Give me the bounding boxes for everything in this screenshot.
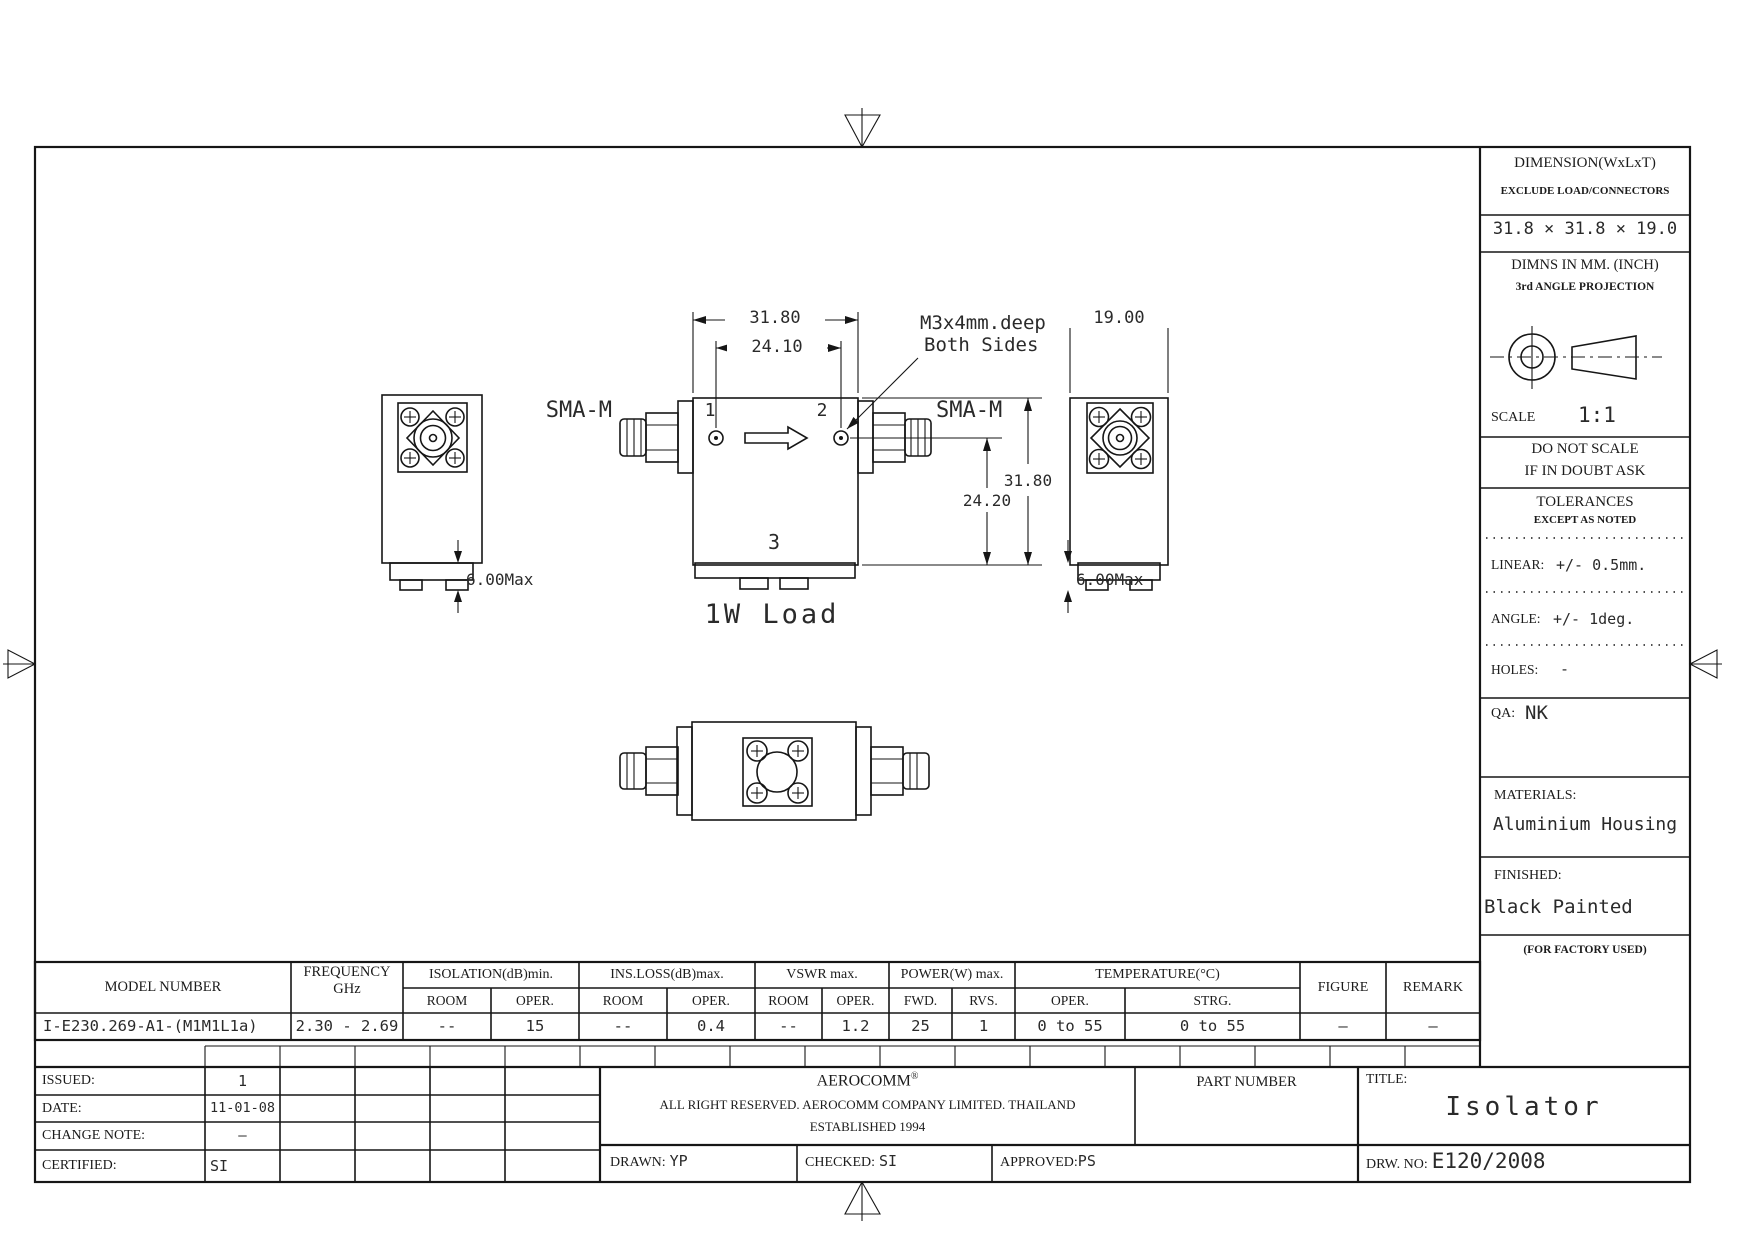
tolerances-subtitle: EXCEPT AS NOTED bbox=[1480, 514, 1690, 526]
cell-temp-oper: 0 to 55 bbox=[1015, 1013, 1125, 1040]
change-note-label: CHANGE NOTE: bbox=[42, 1122, 145, 1150]
col-model: MODEL NUMBER bbox=[35, 962, 291, 1013]
load-label: 1W Load bbox=[672, 599, 872, 630]
holes-label: HOLES: bbox=[1491, 662, 1538, 678]
company-name: AEROCOMM bbox=[817, 1072, 911, 1089]
linear-label: LINEAR: bbox=[1491, 557, 1544, 573]
drw-no-label: DRW. NO: bbox=[1366, 1157, 1428, 1172]
col-ins-loss: INS.LOSS(dB)max. bbox=[579, 962, 755, 988]
sub-vswr-room: ROOM bbox=[755, 988, 822, 1013]
tolerances-title: TOLERANCES bbox=[1480, 494, 1690, 511]
scale-value: 1:1 bbox=[1578, 403, 1616, 427]
bottom-view bbox=[620, 722, 929, 820]
cell-isolation-oper: 15 bbox=[491, 1013, 579, 1040]
qa-label: QA: bbox=[1491, 706, 1515, 722]
sub-temp-oper: OPER. bbox=[1015, 988, 1125, 1013]
sub-iso-room: ROOM bbox=[403, 988, 491, 1013]
date-label: DATE: bbox=[42, 1095, 82, 1122]
col-isolation: ISOLATION(dB)min. bbox=[403, 962, 579, 988]
checked-label: CHECKED: bbox=[805, 1155, 875, 1170]
dim-width-label: 31.80 bbox=[725, 308, 825, 328]
warning-line1: DO NOT SCALE bbox=[1480, 441, 1690, 458]
sub-temp-strg: STRG. bbox=[1125, 988, 1300, 1013]
issued-value: 1 bbox=[205, 1067, 280, 1095]
screw-icon bbox=[1090, 408, 1151, 469]
col-frequency-line1: FREQUENCY bbox=[291, 964, 403, 981]
sub-iso-oper: OPER. bbox=[491, 988, 579, 1013]
cell-model: I-E230.269-A1-(M1M1L1a) bbox=[43, 1013, 283, 1040]
note-m3-line2: Both Sides bbox=[924, 334, 1038, 356]
sub-power-rvs: RVS. bbox=[952, 988, 1015, 1013]
part-number-label: PART NUMBER bbox=[1135, 1074, 1358, 1091]
port2-label: 2 bbox=[812, 400, 832, 421]
certified-label: CERTIFIED: bbox=[42, 1150, 117, 1182]
port3-label: 3 bbox=[764, 530, 784, 554]
sub-ins-oper: OPER. bbox=[667, 988, 755, 1013]
title-value: Isolator bbox=[1358, 1092, 1690, 1122]
qa-value: NK bbox=[1525, 702, 1548, 724]
col-vswr: VSWR max. bbox=[755, 962, 889, 988]
date-value: 11-01-08 bbox=[205, 1095, 280, 1122]
dim-port-height-label: 24.20 bbox=[952, 491, 1022, 510]
cell-isolation-room: -- bbox=[403, 1013, 491, 1040]
right-side-view bbox=[1064, 312, 1168, 613]
units-line1: DIMNS IN MM. (INCH) bbox=[1480, 257, 1690, 274]
units-line2: 3rd ANGLE PROJECTION bbox=[1480, 281, 1690, 293]
checked-cell: CHECKED: SI bbox=[805, 1145, 897, 1178]
col-frequency: FREQUENCY GHz bbox=[291, 964, 403, 998]
note-m3-line1: M3x4mm.deep bbox=[920, 312, 1046, 334]
cell-vswr-oper: 1.2 bbox=[822, 1013, 889, 1040]
dim-base-right-label: 6.00Max bbox=[1076, 570, 1143, 589]
connector-right-label: SMA-M bbox=[936, 398, 1002, 423]
approved-label: APPROVED: bbox=[1000, 1155, 1078, 1170]
company-name-line: AEROCOMM® bbox=[600, 1071, 1135, 1090]
drawn-value: YP bbox=[670, 1152, 688, 1170]
dimension-subtitle: EXCLUDE LOAD/CONNECTORS bbox=[1480, 185, 1690, 197]
col-power: POWER(W) max. bbox=[889, 962, 1015, 988]
cell-power-rvs: 1 bbox=[952, 1013, 1015, 1040]
company-line2: ALL RIGHT RESERVED. AEROCOMM COMPANY LIM… bbox=[600, 1097, 1135, 1113]
col-frequency-line2: GHz bbox=[291, 981, 403, 998]
angle-label: ANGLE: bbox=[1491, 611, 1541, 627]
screw-icon bbox=[747, 741, 808, 803]
dimension-title: DIMENSION(WxLxT) bbox=[1480, 155, 1690, 172]
company-line3: ESTABLISHED 1994 bbox=[600, 1119, 1135, 1135]
col-figure: FIGURE bbox=[1300, 962, 1386, 1013]
approved-value: PS bbox=[1078, 1152, 1096, 1170]
issued-label: ISSUED: bbox=[42, 1067, 95, 1095]
revision-strip bbox=[205, 1046, 1480, 1067]
warning-line2: IF IN DOUBT ASK bbox=[1480, 463, 1690, 480]
linear-value: +/- 0.5mm. bbox=[1556, 556, 1646, 574]
certified-value: SI bbox=[210, 1150, 228, 1182]
cell-remark: — bbox=[1386, 1013, 1480, 1040]
finished-label: FINISHED: bbox=[1494, 868, 1562, 884]
projection-symbol-icon bbox=[1490, 326, 1662, 389]
drw-no-value: E120/2008 bbox=[1432, 1149, 1546, 1173]
finished-value: Black Painted bbox=[1484, 896, 1633, 918]
cell-temp-strg: 0 to 55 bbox=[1125, 1013, 1300, 1040]
dim-height-label: 31.80 bbox=[993, 471, 1063, 490]
connector-left-label: SMA-M bbox=[512, 398, 612, 423]
dimension-value: 31.8 × 31.8 × 19.0 bbox=[1480, 219, 1690, 239]
cell-power-fwd: 25 bbox=[889, 1013, 952, 1040]
col-temperature: TEMPERATURE(°C) bbox=[1015, 962, 1300, 988]
dim-hole-spacing-label: 24.10 bbox=[727, 337, 827, 357]
holes-value: - bbox=[1560, 660, 1569, 678]
port1-label: 1 bbox=[700, 400, 720, 421]
materials-value: Aluminium Housing bbox=[1480, 814, 1690, 835]
dim-depth-label: 19.00 bbox=[1069, 308, 1169, 328]
registered-mark-icon: ® bbox=[911, 1071, 919, 1082]
drawing-sheet: 31.80 24.10 19.00 M3x4mm.deep Both Sides… bbox=[0, 0, 1754, 1240]
cell-ins-loss-room: -- bbox=[579, 1013, 667, 1040]
drawn-cell: DRAWN: YP bbox=[610, 1145, 688, 1178]
cell-ins-loss-oper: 0.4 bbox=[667, 1013, 755, 1040]
sub-power-fwd: FWD. bbox=[889, 988, 952, 1013]
drawn-label: DRAWN: bbox=[610, 1155, 666, 1170]
angle-value: +/- 1deg. bbox=[1553, 610, 1634, 628]
screw-icon bbox=[401, 408, 464, 467]
sub-vswr-oper: OPER. bbox=[822, 988, 889, 1013]
approved-cell: APPROVED:PS bbox=[1000, 1145, 1096, 1178]
col-remark: REMARK bbox=[1386, 962, 1480, 1013]
checked-value: SI bbox=[879, 1152, 897, 1170]
sub-ins-room: ROOM bbox=[579, 988, 667, 1013]
scale-label: SCALE bbox=[1491, 410, 1535, 426]
materials-label: MATERIALS: bbox=[1494, 788, 1576, 804]
change-note-value: — bbox=[205, 1122, 280, 1150]
title-label: TITLE: bbox=[1366, 1071, 1407, 1087]
drw-no-cell: DRW. NO: E120/2008 bbox=[1366, 1145, 1546, 1178]
cell-vswr-room: -- bbox=[755, 1013, 822, 1040]
cell-figure: — bbox=[1300, 1013, 1386, 1040]
dim-base-left-label: 6.00Max bbox=[466, 570, 533, 589]
center-marks bbox=[3, 108, 1722, 1221]
factory-note: (FOR FACTORY USED) bbox=[1480, 944, 1690, 956]
cell-frequency: 2.30 - 2.69 bbox=[291, 1013, 403, 1040]
